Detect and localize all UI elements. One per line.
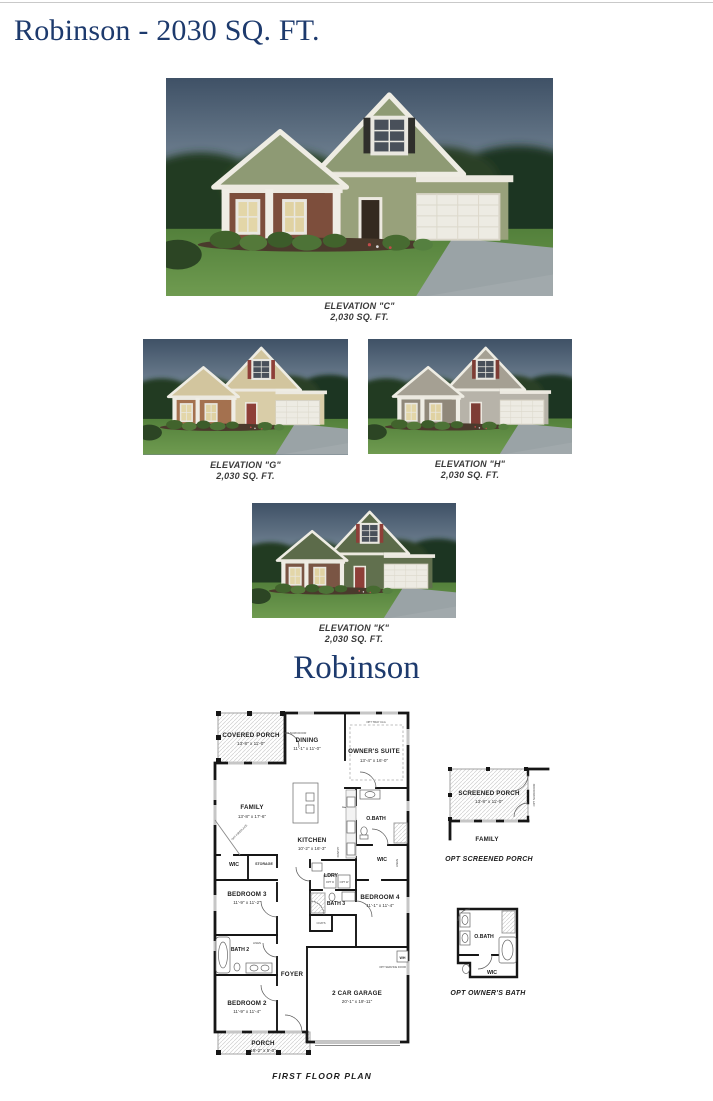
elevation-card-c: ELEVATION "C" 2,030 SQ. FT. [166, 78, 553, 323]
elevation-card-g: ELEVATION "G" 2,030 SQ. FT. [143, 339, 348, 482]
room-dims-bedroom4: 11'-1" x 11'-4" [366, 903, 394, 908]
elevation-c-name: ELEVATION "C" [166, 301, 553, 312]
detail-owners-bath-caption: OPT OWNER'S BATH [450, 990, 526, 997]
room-dims-covered-porch: 13'-8" x 11'-0" [237, 741, 265, 746]
elevation-g-sqft: 2,030 SQ. FT. [143, 471, 348, 482]
room-label-wic-right: WIC [377, 857, 387, 863]
room-label-kitchen: KITCHEN [298, 837, 327, 844]
top-rule [0, 2, 713, 3]
room-dims-bedroom2: 11'-9" x 11'-4" [233, 1009, 261, 1014]
room-label-covered-porch: COVERED PORCH [222, 732, 280, 739]
room-label-obath: O.BATH [366, 816, 386, 822]
detail-screened-porch-label: SCREENED PORCH [458, 790, 520, 797]
detail-family-label: FAMILY [475, 836, 499, 843]
house-photo-elevation-h [368, 339, 572, 454]
elevation-card-h: ELEVATION "H" 2,030 SQ. FT. [368, 339, 572, 481]
annotation-opt-scrn-door: OPT SCRN DOOR [284, 731, 307, 735]
house-photo-elevation-k [252, 503, 456, 618]
elevation-h-sqft: 2,030 SQ. FT. [368, 470, 572, 481]
first-floor-plan-caption: FIRST FLOOR PLAN [272, 1071, 372, 1081]
room-label-bedroom2: BEDROOM 2 [227, 1000, 267, 1007]
annotation-wh: WH [400, 956, 406, 960]
annotation-opt-d: OPT D [326, 880, 334, 884]
elevation-g-name: ELEVATION "G" [143, 460, 348, 471]
room-label-family: FAMILY [240, 804, 264, 811]
house-photo-elevation-g [143, 339, 348, 455]
room-label-bedroom4: BEDROOM 4 [360, 894, 400, 901]
room-dims-porch: 19'-2" x 5'-0" [250, 1048, 276, 1053]
annotation-pantry: PANTRY [336, 846, 340, 857]
room-dims-owners-suite: 13'-4" x 16'-0" [360, 758, 389, 763]
house-illustration [143, 339, 348, 455]
annotation-coats: COATS [316, 921, 325, 925]
detail-screened-porch: SCREENED PORCH 13'-8" x 11'-0" FAMILY OP… [445, 767, 548, 863]
room-dims-kitchen: 10'-2" x 16'-3" [298, 846, 327, 851]
detail-obath-label: O.BATH [474, 934, 494, 940]
house-photo-elevation-c [166, 78, 553, 296]
annotation-linen-hall: LINEN [395, 859, 399, 867]
elevation-h-name: ELEVATION "H" [368, 459, 572, 470]
annotation-linen-bath2: LINEN [253, 941, 261, 945]
room-label-bath2: BATH 2 [231, 947, 249, 953]
elevation-k-sqft: 2,030 SQ. FT. [252, 634, 456, 645]
room-labels: COVERED PORCH 13'-8" x 11'-0" DINING 11'… [222, 732, 400, 1053]
detail-opt-scrn-door-note: OPT SCRN DOOR [532, 784, 536, 807]
room-label-ldry: LDRY [324, 873, 338, 879]
room-dims-garage: 20'-1" x 19'-11" [342, 999, 373, 1004]
annotation-opt-fireplace: OPT FIREPLACE [230, 823, 248, 841]
room-label-porch: PORCH [251, 1040, 275, 1047]
room-label-wic-left: WIC [229, 862, 239, 868]
room-dims-bedroom3: 11'-9" x 11'-2" [233, 900, 261, 905]
room-label-storage: STORAGE [255, 862, 273, 866]
floor-plan-drawing: COVERED PORCH 13'-8" x 11'-0" DINING 11'… [210, 705, 570, 1095]
house-illustration [166, 78, 553, 296]
detail-screened-porch-dims: 13'-8" x 11'-0" [475, 799, 503, 804]
detail-wic-label: WIC [487, 970, 497, 976]
house-illustration [252, 503, 456, 618]
annotation-opt-tray: OPT TRAY CLG [366, 720, 385, 724]
elevation-k-name: ELEVATION "K" [252, 623, 456, 634]
room-dims-family: 13'-8" x 17'-6" [238, 814, 267, 819]
room-label-owners-suite: OWNER'S SUITE [348, 748, 400, 755]
page-title: Robinson - 2030 SQ. FT. [14, 14, 320, 48]
house-illustration [368, 339, 572, 454]
annotation-opt-w: OPT W [340, 880, 349, 884]
room-label-dining: DINING [296, 737, 319, 744]
room-label-foyer: FOYER [281, 971, 304, 978]
room-dims-dining: 11'-1" x 11'-0" [293, 746, 321, 751]
room-label-garage: 2 CAR GARAGE [332, 990, 382, 997]
room-label-bedroom3: BEDROOM 3 [227, 891, 267, 898]
room-label-bath3: BATH 3 [327, 901, 345, 907]
elevation-card-k: ELEVATION "K" 2,030 SQ. FT. [252, 503, 456, 645]
detail-screened-porch-caption: OPT SCREENED PORCH [445, 856, 533, 863]
elevation-c-sqft: 2,030 SQ. FT. [166, 312, 553, 323]
plan-heading: Robinson [0, 650, 713, 687]
annotation-opt-service-door: OPT SERVICE DOOR [379, 965, 406, 969]
detail-owners-bath: O.BATH WIC OPT OWNER'S BATH [450, 909, 526, 997]
floor-plan: COVERED PORCH 13'-8" x 11'-0" DINING 11'… [210, 705, 570, 1095]
